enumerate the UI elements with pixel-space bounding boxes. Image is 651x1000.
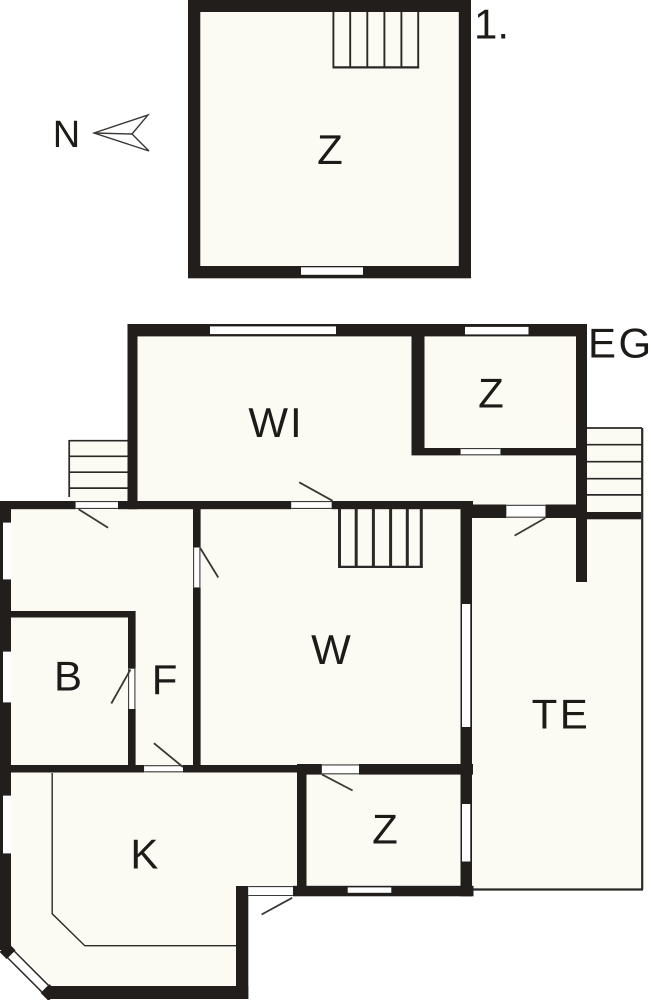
svg-text:TE: TE (532, 691, 591, 738)
svg-text:WI: WI (248, 399, 303, 446)
svg-text:K: K (130, 830, 158, 877)
svg-text:B: B (54, 653, 82, 700)
svg-text:1.: 1. (474, 1, 509, 48)
svg-text:EG: EG (588, 320, 651, 367)
svg-text:N: N (53, 114, 80, 156)
svg-text:F: F (152, 656, 178, 703)
svg-text:W: W (311, 626, 351, 673)
svg-text:Z: Z (372, 806, 398, 853)
svg-text:Z: Z (317, 126, 343, 173)
svg-text:Z: Z (478, 370, 504, 417)
